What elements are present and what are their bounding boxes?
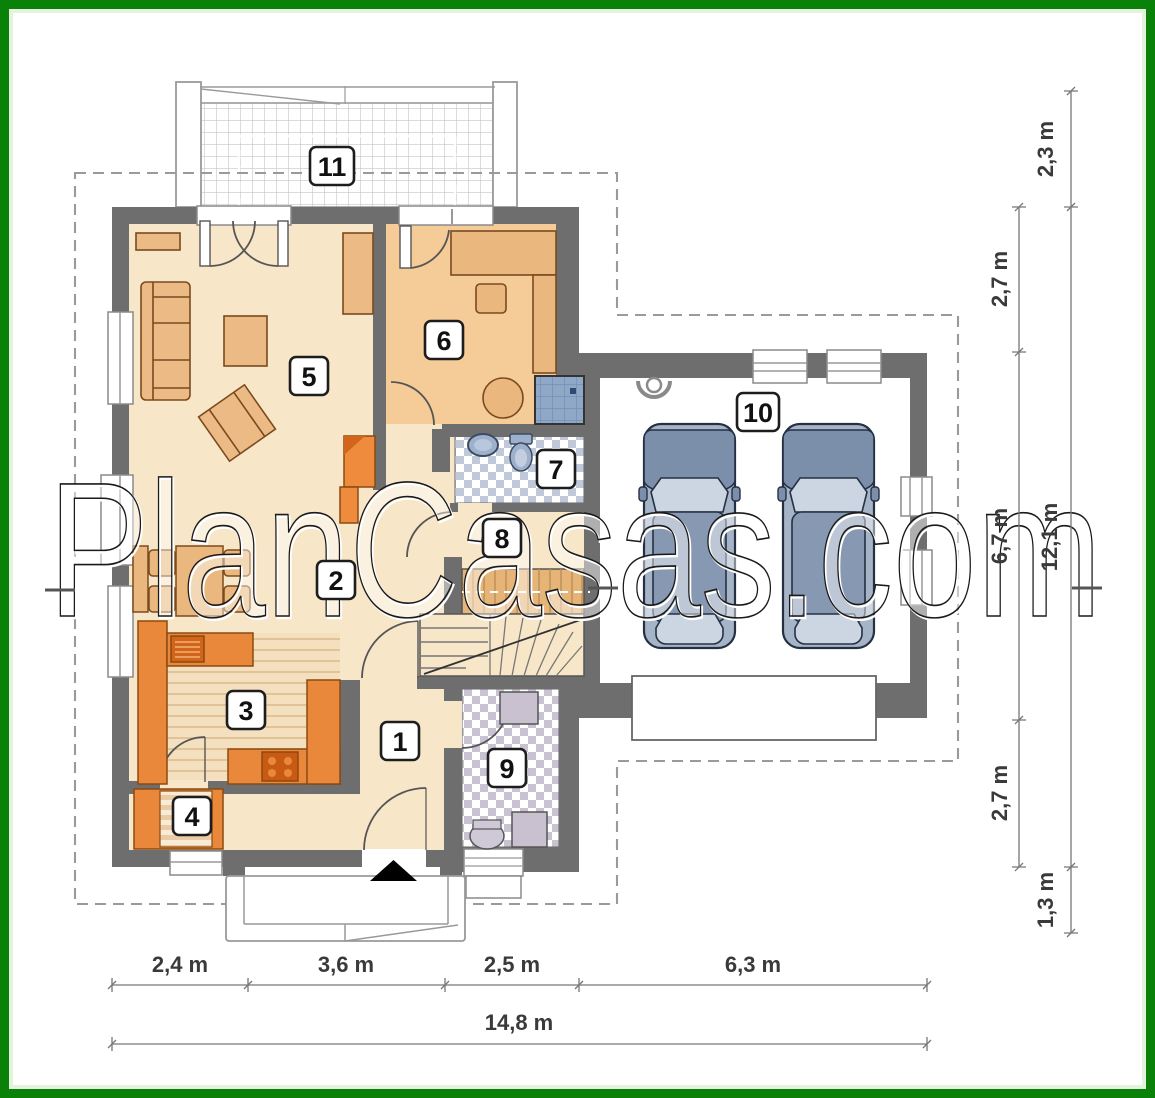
svg-text:2,7 m: 2,7 m bbox=[987, 765, 1012, 821]
svg-text:12,1 m: 12,1 m bbox=[1037, 503, 1062, 572]
svg-text:2: 2 bbox=[328, 566, 343, 596]
svg-text:6,3 m: 6,3 m bbox=[725, 952, 781, 977]
svg-text:6: 6 bbox=[436, 326, 451, 356]
svg-text:7: 7 bbox=[548, 455, 563, 485]
svg-text:2,4 m: 2,4 m bbox=[152, 952, 208, 977]
svg-text:9: 9 bbox=[499, 754, 514, 784]
svg-text:3: 3 bbox=[238, 696, 253, 726]
svg-text:1,3 m: 1,3 m bbox=[1033, 872, 1058, 928]
svg-text:8: 8 bbox=[494, 524, 509, 554]
svg-text:14,8 m: 14,8 m bbox=[485, 1010, 554, 1035]
svg-text:1: 1 bbox=[392, 727, 407, 757]
svg-text:4: 4 bbox=[184, 802, 199, 832]
svg-text:2,7 m: 2,7 m bbox=[987, 251, 1012, 307]
svg-text:3,6 m: 3,6 m bbox=[318, 952, 374, 977]
svg-text:10: 10 bbox=[743, 398, 773, 428]
svg-text:2,3 m: 2,3 m bbox=[1033, 121, 1058, 177]
svg-text:11: 11 bbox=[318, 152, 347, 182]
svg-text:6,7 m: 6,7 m bbox=[987, 508, 1012, 564]
svg-text:5: 5 bbox=[301, 362, 316, 392]
svg-text:2,5 m: 2,5 m bbox=[484, 952, 540, 977]
